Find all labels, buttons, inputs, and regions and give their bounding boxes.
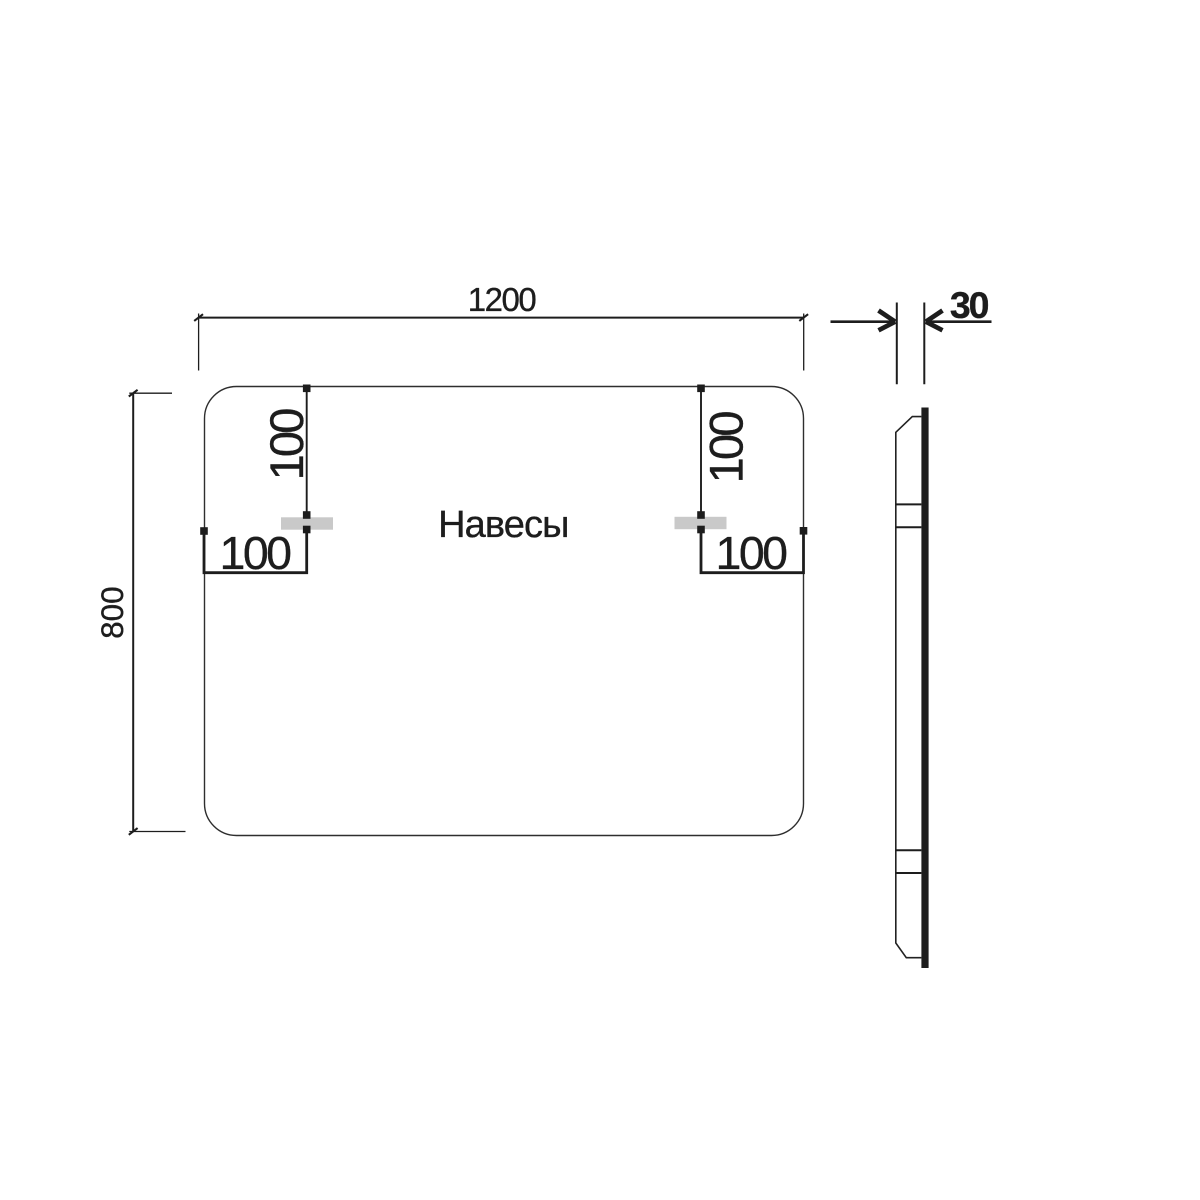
svg-text:100: 100 bbox=[219, 527, 291, 579]
svg-text:Навесы: Навесы bbox=[438, 504, 568, 546]
svg-text:800: 800 bbox=[94, 586, 130, 639]
svg-text:100: 100 bbox=[699, 412, 752, 484]
svg-text:100: 100 bbox=[260, 409, 313, 481]
svg-text:1200: 1200 bbox=[468, 281, 537, 318]
svg-text:30: 30 bbox=[950, 284, 989, 326]
svg-text:100: 100 bbox=[715, 527, 787, 579]
